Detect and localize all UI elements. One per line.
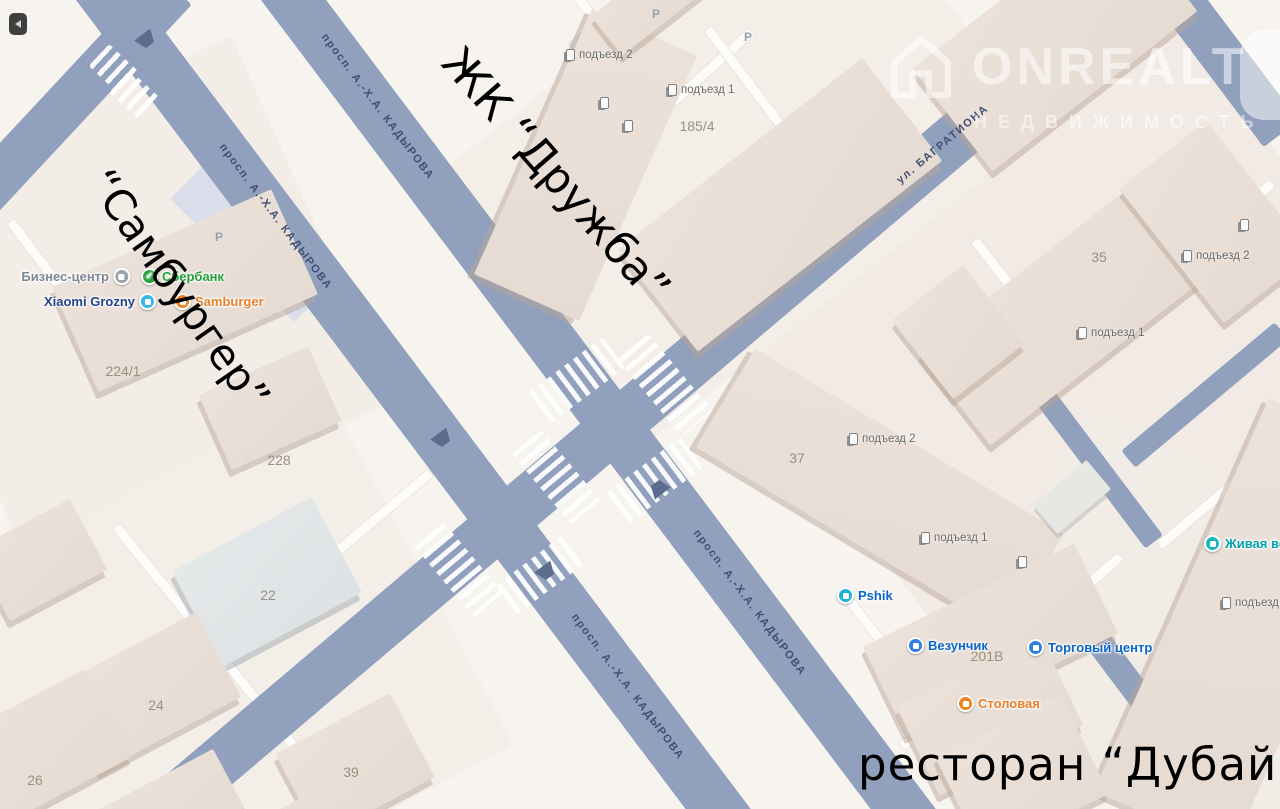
entrance-door-icon [1240, 219, 1249, 231]
map-poi[interactable]: Везунчик [907, 637, 988, 654]
entrance-text: подъезд 1 [1091, 327, 1144, 339]
vezunchik-icon [907, 637, 924, 654]
map-poi[interactable]: Столовая [957, 695, 1040, 712]
poi-glyph [1033, 645, 1039, 651]
parking-label: P [652, 7, 666, 22]
entrance-label: подъезд 2 [849, 433, 915, 445]
poi-label: Xiaomi Grozny [44, 294, 135, 309]
map-poi[interactable]: Бизнес-центр [21, 268, 130, 285]
entrance-label [600, 97, 609, 109]
poi-glyph [145, 299, 151, 305]
entrance-label: подъезд 2 [566, 49, 632, 61]
street-name-label: просп. А.-Х.А. КАДЫРОВА [669, 503, 826, 704]
poi-glyph [843, 593, 849, 599]
building-number: 35 [1059, 249, 1139, 266]
entrance-door-icon [1018, 556, 1027, 568]
entrance-label: подъезд 2 [1183, 250, 1249, 262]
building-number: 39 [311, 764, 391, 781]
entrance-door-icon [566, 49, 575, 61]
entrance-text: подъезд 2 [862, 433, 915, 445]
water-shop-icon [1204, 535, 1221, 552]
poi-label: Везунчик [928, 638, 988, 653]
entrance-door-icon [921, 532, 930, 544]
entrance-text: подъезд 1 [934, 532, 987, 544]
street-name-label: просп. А.-Х.А. КАДЫРОВА [297, 7, 454, 208]
entrance-text: подъезд 1 [1235, 597, 1280, 609]
entrance-door-icon [1222, 597, 1231, 609]
entrance-text: подъезд 2 [579, 49, 632, 61]
map-poi[interactable]: Xiaomi Grozny [44, 293, 156, 310]
building-number: 228 [239, 452, 319, 469]
entrance-door-icon [1078, 327, 1087, 339]
poi-glyph [963, 701, 969, 707]
map-poi[interactable]: Торговый центр [1027, 639, 1152, 656]
building-number: 26 [0, 772, 75, 789]
poi-label: Бизнес-центр [21, 269, 109, 284]
parking-label: P [215, 230, 229, 245]
business-center-icon [113, 268, 130, 285]
poi-label: Pshik [858, 588, 893, 603]
building-number: 37 [757, 450, 837, 467]
map-poi[interactable]: Pshik [837, 587, 893, 604]
entrance-label [1240, 219, 1249, 231]
entrance-door-icon [624, 120, 633, 132]
parking-label: P [744, 30, 758, 45]
annotation-restoran-dubai: ресторан “Дубай” [858, 738, 1280, 791]
map-canvas[interactable]: просп. А.-Х.А. КАДЫРОВАпросп. А.-Х.А. КА… [0, 0, 1280, 809]
entrance-label [1018, 556, 1027, 568]
map-poi[interactable]: Живая вода [1204, 535, 1280, 552]
entrance-text: подъезд 2 [1196, 250, 1249, 262]
mall-icon [1027, 639, 1044, 656]
poi-glyph [119, 274, 125, 280]
entrance-label: подъезд 1 [668, 84, 734, 96]
watermark-corner-shape [1240, 30, 1280, 120]
back-arrow-icon [15, 20, 21, 28]
entrance-door-icon [849, 433, 858, 445]
building-number: 224/1 [83, 363, 163, 380]
building-number: 24 [116, 697, 196, 714]
canteen-icon [957, 695, 974, 712]
poi-label: Столовая [978, 696, 1040, 711]
entrance-label: подъезд 1 [1222, 597, 1280, 609]
poi-label: Живая вода [1225, 536, 1280, 551]
building-number: 185/4 [657, 118, 737, 135]
poi-glyph [1210, 541, 1216, 547]
back-button[interactable] [9, 13, 27, 35]
entrance-label [624, 120, 633, 132]
entrance-text: подъезд 1 [681, 84, 734, 96]
street-name-label: просп. А.-Х.А. КАДЫРОВА [547, 587, 704, 788]
entrance-door-icon [600, 97, 609, 109]
pshik-icon [837, 587, 854, 604]
building-number: 22 [228, 587, 308, 604]
entrance-label: подъезд 1 [921, 532, 987, 544]
entrance-door-icon [668, 84, 677, 96]
poi-label: Торговый центр [1048, 640, 1152, 655]
entrance-label: подъезд 1 [1078, 327, 1144, 339]
poi-glyph [913, 643, 919, 649]
entrance-door-icon [1183, 250, 1192, 262]
